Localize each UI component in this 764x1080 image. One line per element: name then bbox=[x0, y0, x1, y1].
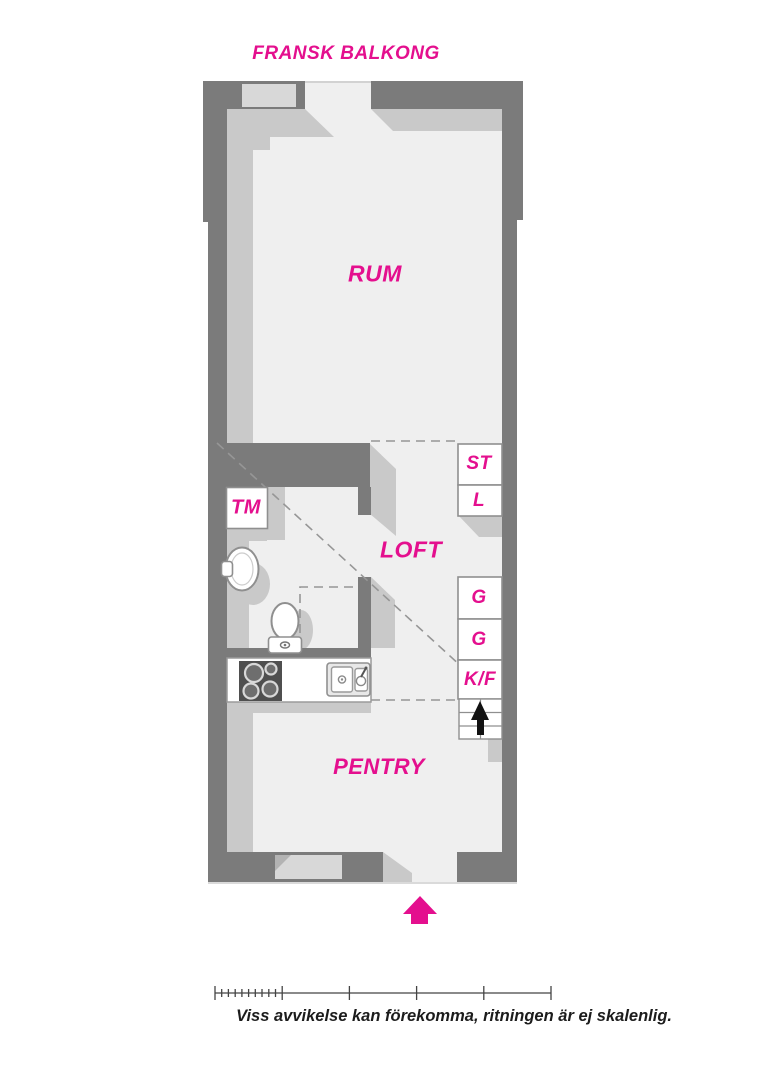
balcony-title: FRANSK BALKONG bbox=[252, 43, 440, 65]
balcony-door-opening bbox=[305, 81, 371, 109]
room-label-pentry: PENTRY bbox=[333, 754, 425, 780]
fixture-label-st: ST bbox=[466, 453, 491, 475]
room-label-rum: RUM bbox=[348, 261, 402, 288]
fixture-label-tm: TM bbox=[231, 497, 261, 520]
entrance-arrow-icon bbox=[403, 896, 437, 924]
kitchen-sink-icon bbox=[327, 663, 370, 696]
kitchen-counter bbox=[227, 658, 371, 702]
scale-ruler bbox=[215, 986, 551, 1000]
stairs bbox=[459, 699, 502, 739]
fixture-label-l: L bbox=[473, 490, 485, 512]
floor-plan-page: FRANSK BALKONG RUM TM LOFT ST L G G K/F … bbox=[0, 0, 764, 1080]
window-top bbox=[242, 84, 296, 107]
toilet-icon bbox=[269, 603, 302, 653]
window-bottom bbox=[275, 855, 342, 879]
disclaimer-text: Viss avvikelse kan förekomma, ritningen … bbox=[192, 1007, 672, 1026]
stove-icon bbox=[239, 661, 282, 701]
fixture-label-g1: G bbox=[471, 587, 486, 609]
fixture-label-g2: G bbox=[471, 629, 486, 651]
fixture-label-kf: K/F bbox=[464, 669, 496, 691]
room-label-loft: LOFT bbox=[380, 537, 442, 564]
entrance-door-opening bbox=[383, 852, 457, 882]
